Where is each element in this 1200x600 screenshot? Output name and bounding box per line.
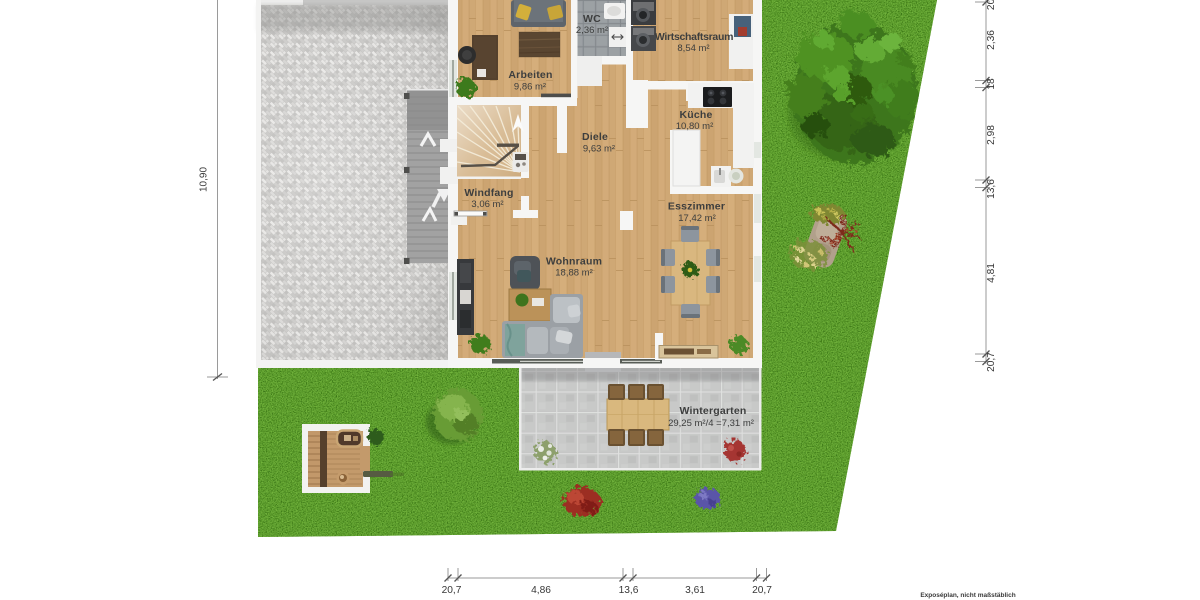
svg-text:WC: WC	[583, 13, 601, 25]
svg-text:Wirtschaftsraum: Wirtschaftsraum	[655, 31, 733, 43]
svg-text:2,98: 2,98	[986, 125, 997, 145]
svg-text:20,7: 20,7	[442, 585, 462, 596]
svg-text:Wintergarten: Wintergarten	[679, 405, 746, 417]
svg-text:9,86 m²: 9,86 m²	[514, 82, 546, 93]
svg-text:Diele: Diele	[582, 131, 608, 143]
svg-text:4,81: 4,81	[986, 263, 997, 283]
svg-text:18: 18	[986, 78, 997, 90]
svg-text:Esszimmer: Esszimmer	[668, 201, 725, 213]
svg-text:Exposéplan, nicht maßstäblich: Exposéplan, nicht maßstäblich	[920, 592, 1015, 599]
svg-text:2,36 m²: 2,36 m²	[576, 25, 608, 36]
svg-text:10,90: 10,90	[199, 167, 210, 192]
svg-text:3,61: 3,61	[685, 585, 705, 596]
svg-text:4,86: 4,86	[531, 585, 551, 596]
svg-text:9,63 m²: 9,63 m²	[583, 144, 615, 155]
svg-text:20,7: 20,7	[986, 352, 997, 372]
svg-text:18,88 m²: 18,88 m²	[555, 268, 593, 279]
svg-text:20,7: 20,7	[752, 585, 772, 596]
svg-text:Windfang: Windfang	[464, 187, 513, 199]
svg-text:Arbeiten: Arbeiten	[508, 69, 552, 81]
svg-text:Küche: Küche	[679, 109, 712, 121]
svg-text:3,06 m²: 3,06 m²	[471, 199, 503, 210]
svg-text:17,42 m²: 17,42 m²	[678, 213, 716, 224]
svg-text:2,36: 2,36	[986, 30, 997, 50]
svg-text:Wohnraum: Wohnraum	[546, 256, 602, 268]
svg-text:13,6: 13,6	[619, 585, 639, 596]
svg-text:8,54 m²: 8,54 m²	[677, 43, 709, 54]
svg-text:10,80 m²: 10,80 m²	[676, 121, 714, 132]
svg-text:13,6: 13,6	[986, 179, 997, 199]
svg-text:20,: 20,	[986, 0, 997, 10]
svg-text:29,25 m²/4 =7,31 m²: 29,25 m²/4 =7,31 m²	[668, 418, 754, 429]
